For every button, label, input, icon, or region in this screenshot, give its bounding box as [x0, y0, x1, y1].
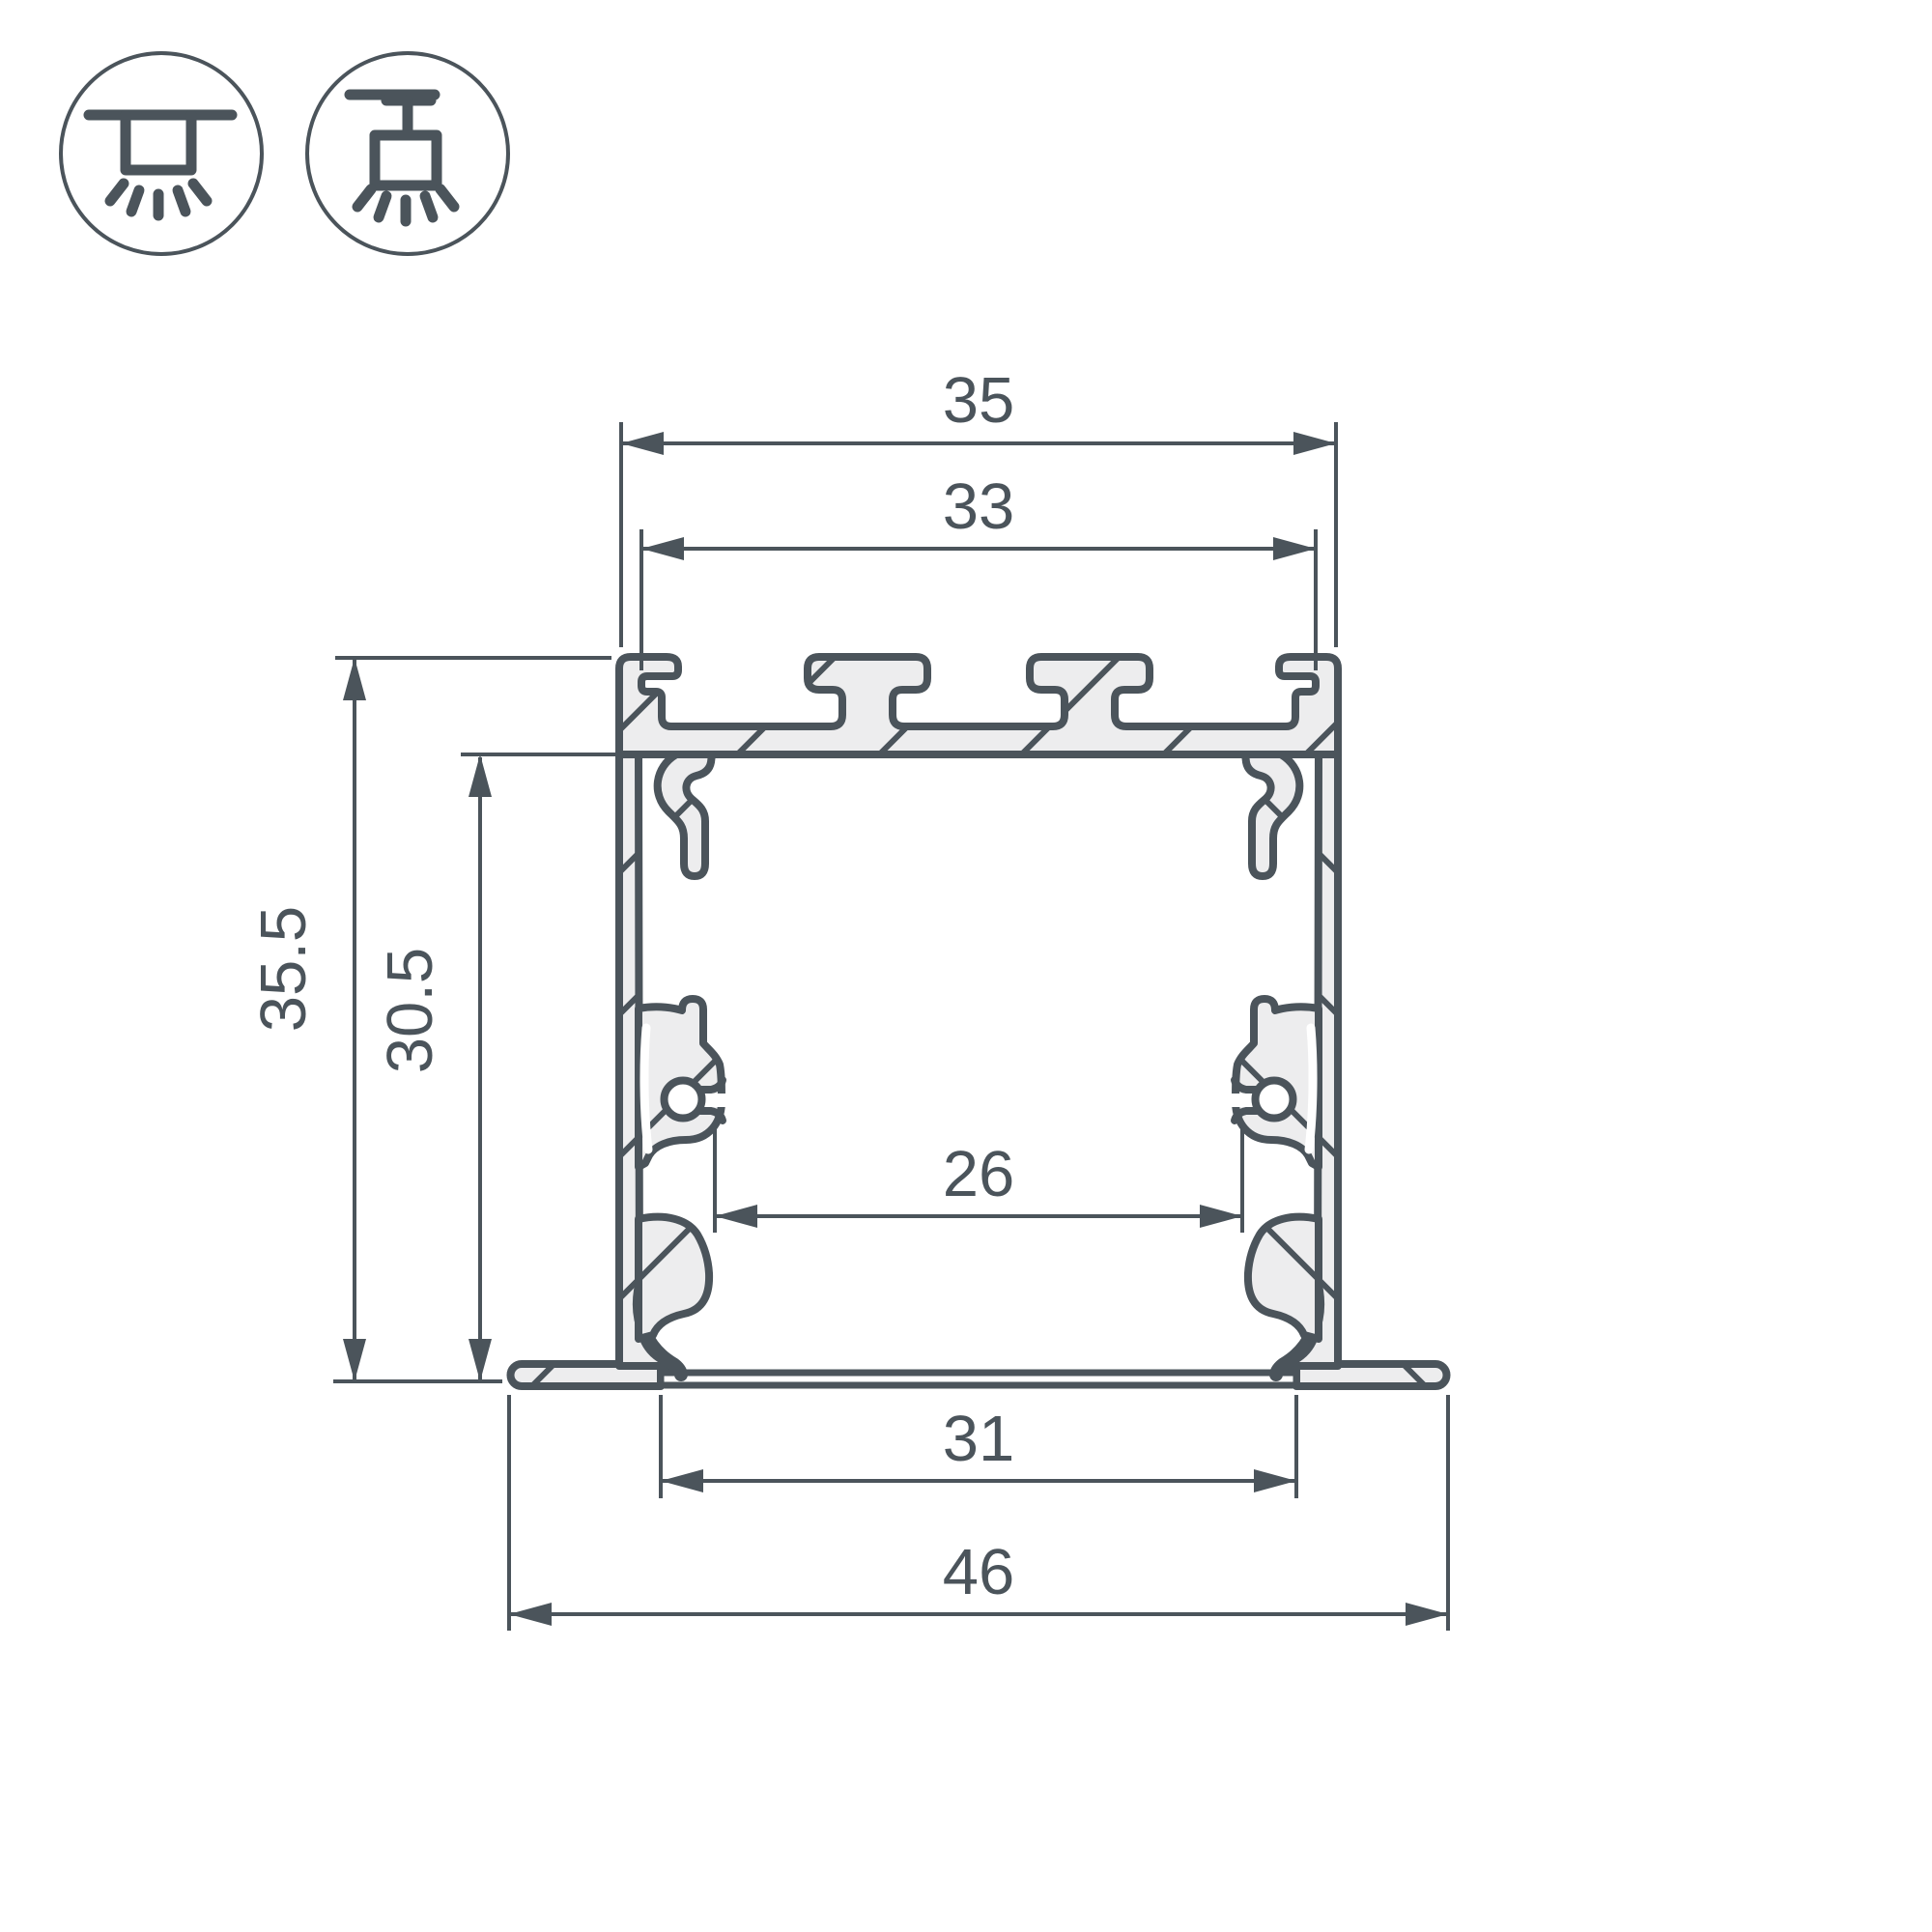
profile-technical-drawing: 35 33 35.5 30.5 26 31 46 — [0, 0, 1932, 1932]
dim-inner-width-label: 26 — [943, 1138, 1015, 1210]
dim-top-width-label: 35 — [943, 364, 1015, 437]
dim-overall-height-label: 35.5 — [247, 906, 320, 1032]
dim-flange-width-label: 46 — [943, 1536, 1015, 1608]
dim-opening-width-label: 31 — [943, 1403, 1015, 1475]
dim-inner-height-label: 30.5 — [374, 948, 446, 1073]
drawing-page: 35 33 35.5 30.5 26 31 46 — [0, 0, 1932, 1932]
dim-slot-width-label: 33 — [943, 470, 1015, 543]
recessed-mount-icon — [61, 53, 262, 254]
profile-cross-section — [511, 657, 1447, 1386]
surface-mount-icon — [307, 53, 508, 254]
profile-top-bar — [619, 657, 1338, 754]
profile-bottom-sheet — [661, 1373, 1296, 1385]
